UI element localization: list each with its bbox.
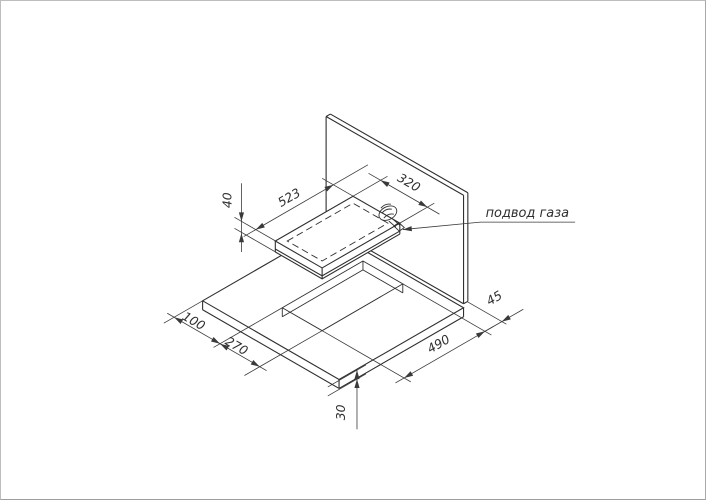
dim-text-cutout-depth: 270 <box>223 333 251 358</box>
dim-text-hob-thickness: 40 <box>219 192 234 208</box>
dim-text-worktop-thickness: 30 <box>333 404 348 420</box>
gas-supply-label: подвод газа <box>486 206 570 221</box>
dim-text-hob-length: 523 <box>275 185 303 210</box>
dim-text-left-edge-to-cutout: 100 <box>180 308 208 333</box>
technical-drawing-canvas: 523 320 40 100 270 490 45 30 подвод газа <box>1 1 705 499</box>
dim-text-cutout-to-wall: 45 <box>484 287 505 308</box>
callout-leader-line <box>403 222 575 229</box>
drawing-page: 523 320 40 100 270 490 45 30 подвод газа <box>0 0 706 500</box>
